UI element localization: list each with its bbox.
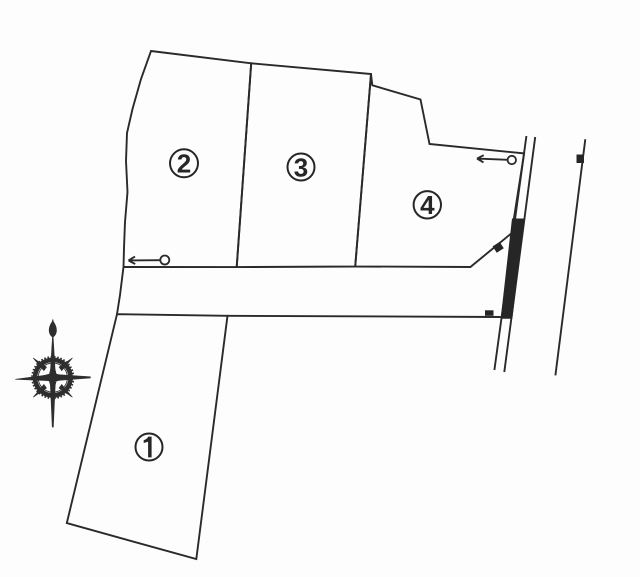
svg-text:2: 2 (177, 149, 191, 179)
svg-text:3: 3 (294, 152, 308, 182)
svg-text:4: 4 (420, 190, 435, 220)
